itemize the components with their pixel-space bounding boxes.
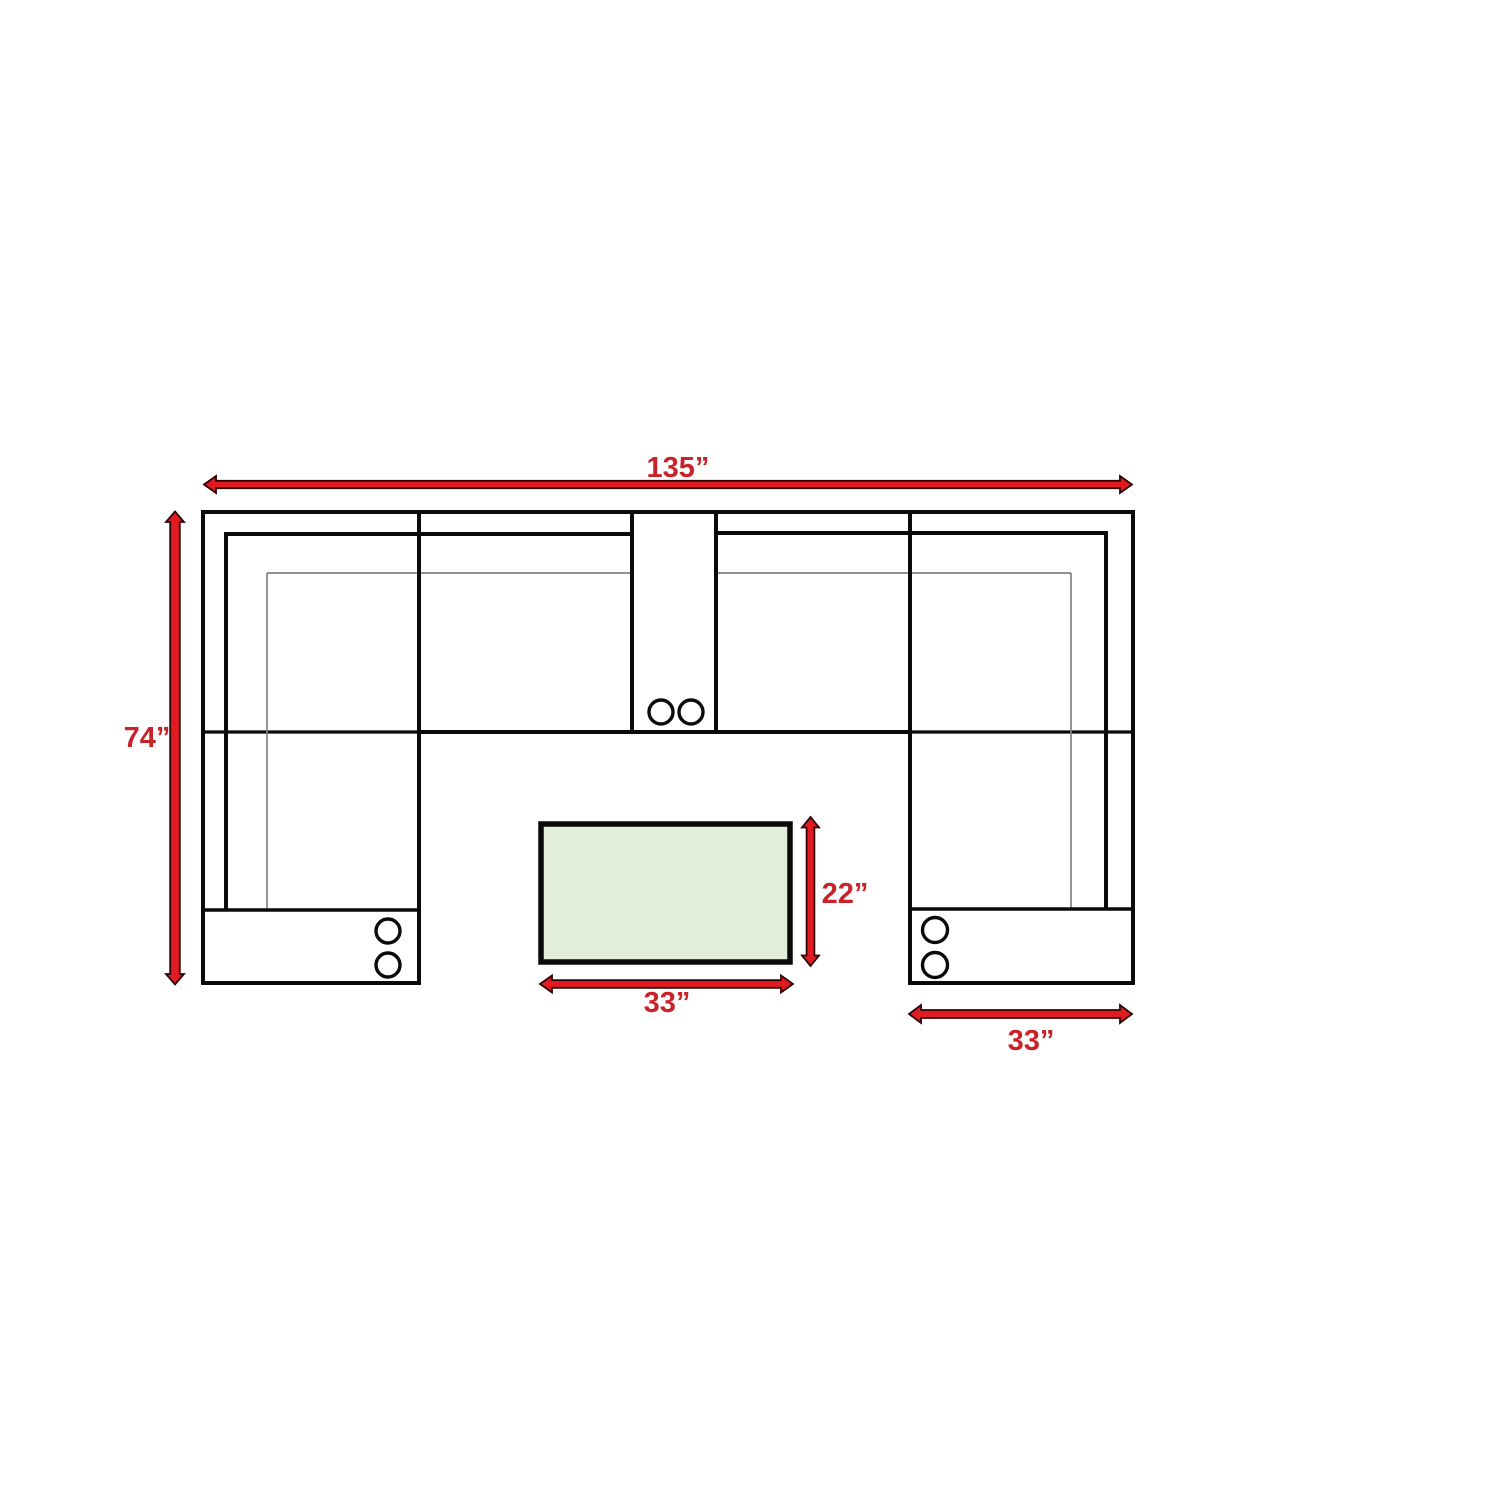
- svg-text:33”: 33”: [644, 987, 691, 1019]
- svg-text:33”: 33”: [1008, 1025, 1055, 1057]
- svg-text:22”: 22”: [822, 878, 869, 910]
- svg-text:74”: 74”: [124, 722, 171, 754]
- svg-text:135”: 135”: [647, 452, 710, 484]
